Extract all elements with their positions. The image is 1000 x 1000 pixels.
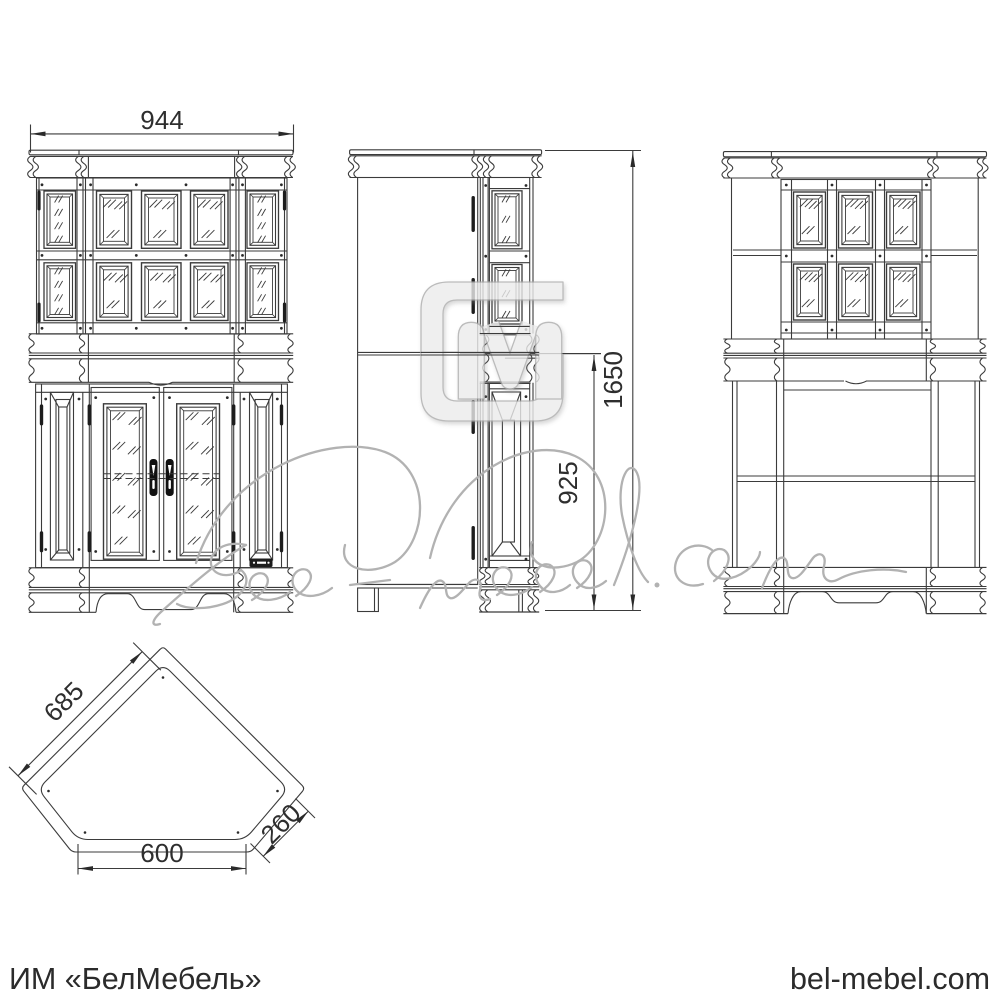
svg-text:bel-mebel.com: bel-mebel.com <box>790 962 990 996</box>
svg-text:925: 925 <box>553 461 583 504</box>
svg-text:600: 600 <box>140 838 183 868</box>
svg-text:944: 944 <box>140 105 183 135</box>
svg-text:1650: 1650 <box>598 351 628 409</box>
svg-text:ИМ «БелМебель»: ИМ «БелМебель» <box>9 962 262 996</box>
